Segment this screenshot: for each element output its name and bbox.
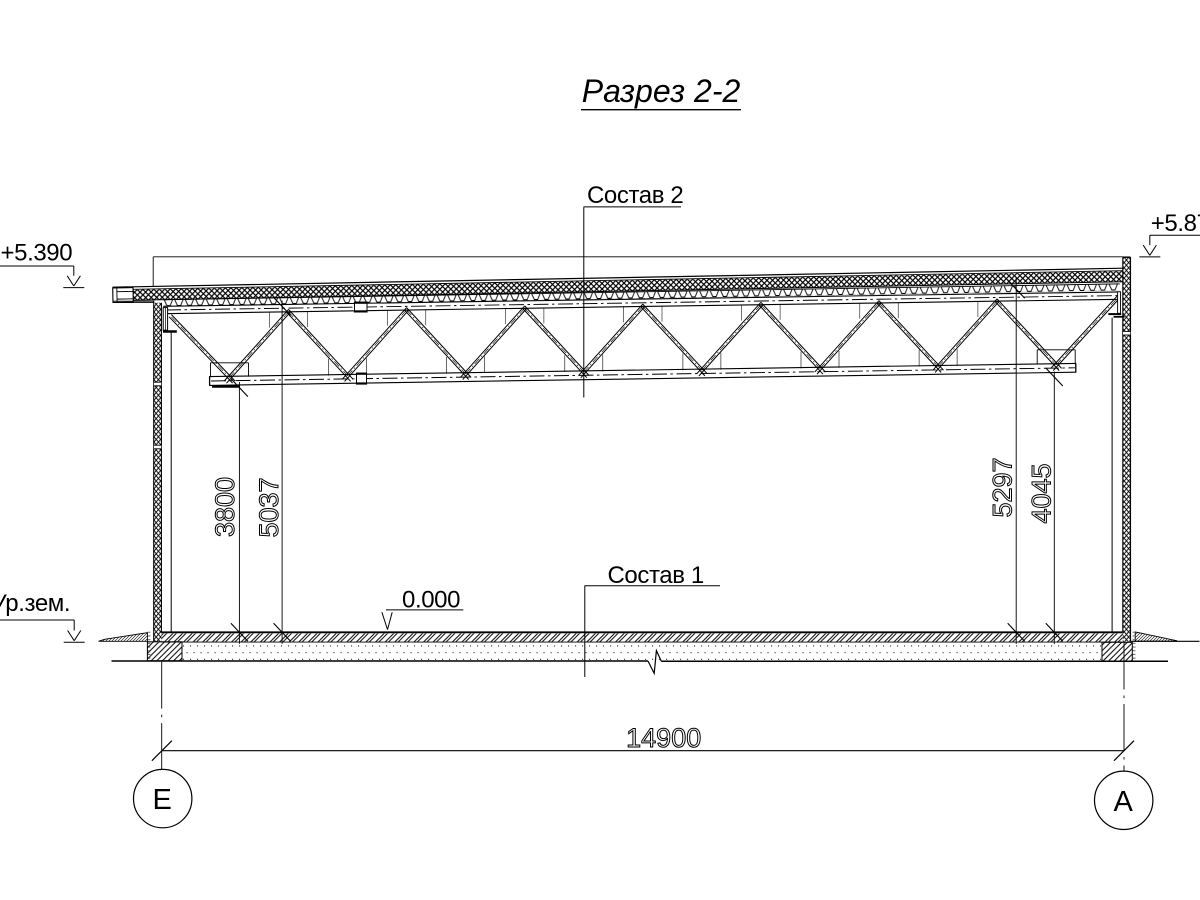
svg-text:Разрез 2-2: Разрез 2-2 bbox=[582, 73, 741, 109]
svg-text:4045: 4045 bbox=[1027, 463, 1057, 523]
svg-text:Состав 2: Состав 2 bbox=[587, 182, 683, 209]
svg-text:+5.870: +5.870 bbox=[1151, 210, 1200, 237]
svg-text:5037: 5037 bbox=[254, 477, 284, 537]
svg-text:Состав 1: Состав 1 bbox=[608, 562, 704, 589]
svg-text:Ур.зем.: Ур.зем. bbox=[0, 590, 70, 617]
svg-text:А: А bbox=[1114, 786, 1134, 818]
svg-text:14900: 14900 bbox=[626, 723, 701, 753]
svg-text:5297: 5297 bbox=[988, 457, 1018, 517]
svg-text:+5.390: +5.390 bbox=[1, 240, 73, 267]
svg-text:0.000: 0.000 bbox=[402, 586, 460, 613]
svg-text:3800: 3800 bbox=[210, 477, 240, 537]
svg-text:Е: Е bbox=[153, 784, 172, 816]
